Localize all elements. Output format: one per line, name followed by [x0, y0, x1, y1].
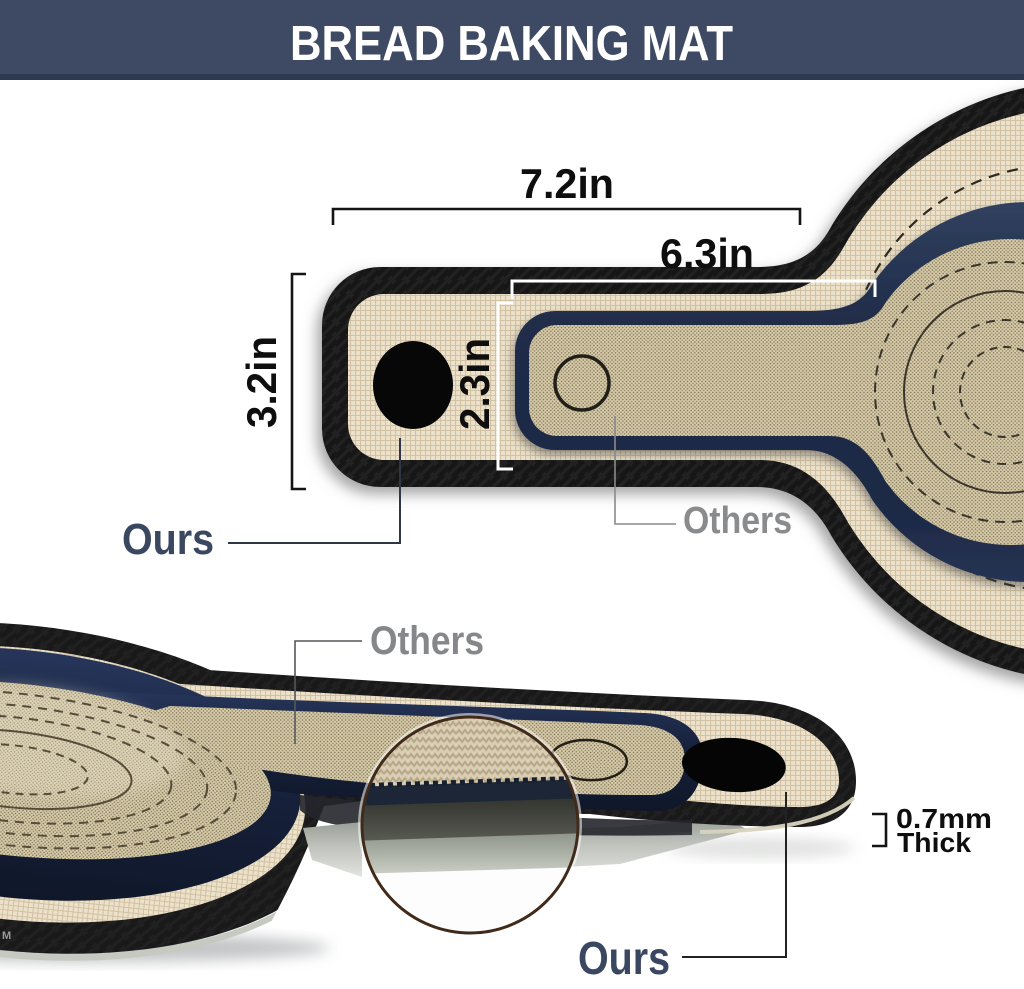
svg-text:Thick: Thick — [897, 827, 971, 858]
svg-text:M: M — [2, 930, 11, 942]
svg-text:Others: Others — [370, 619, 484, 663]
svg-text:BREAD BAKING MAT: BREAD BAKING MAT — [290, 17, 733, 71]
svg-text:2.3in: 2.3in — [451, 338, 498, 430]
svg-text:Ours: Ours — [578, 932, 670, 984]
svg-text:3.2in: 3.2in — [238, 336, 285, 428]
svg-text:Ours: Ours — [122, 515, 214, 564]
svg-text:7.2in: 7.2in — [520, 160, 614, 207]
svg-text:6.3in: 6.3in — [660, 230, 754, 277]
svg-text:Others: Others — [683, 500, 792, 542]
